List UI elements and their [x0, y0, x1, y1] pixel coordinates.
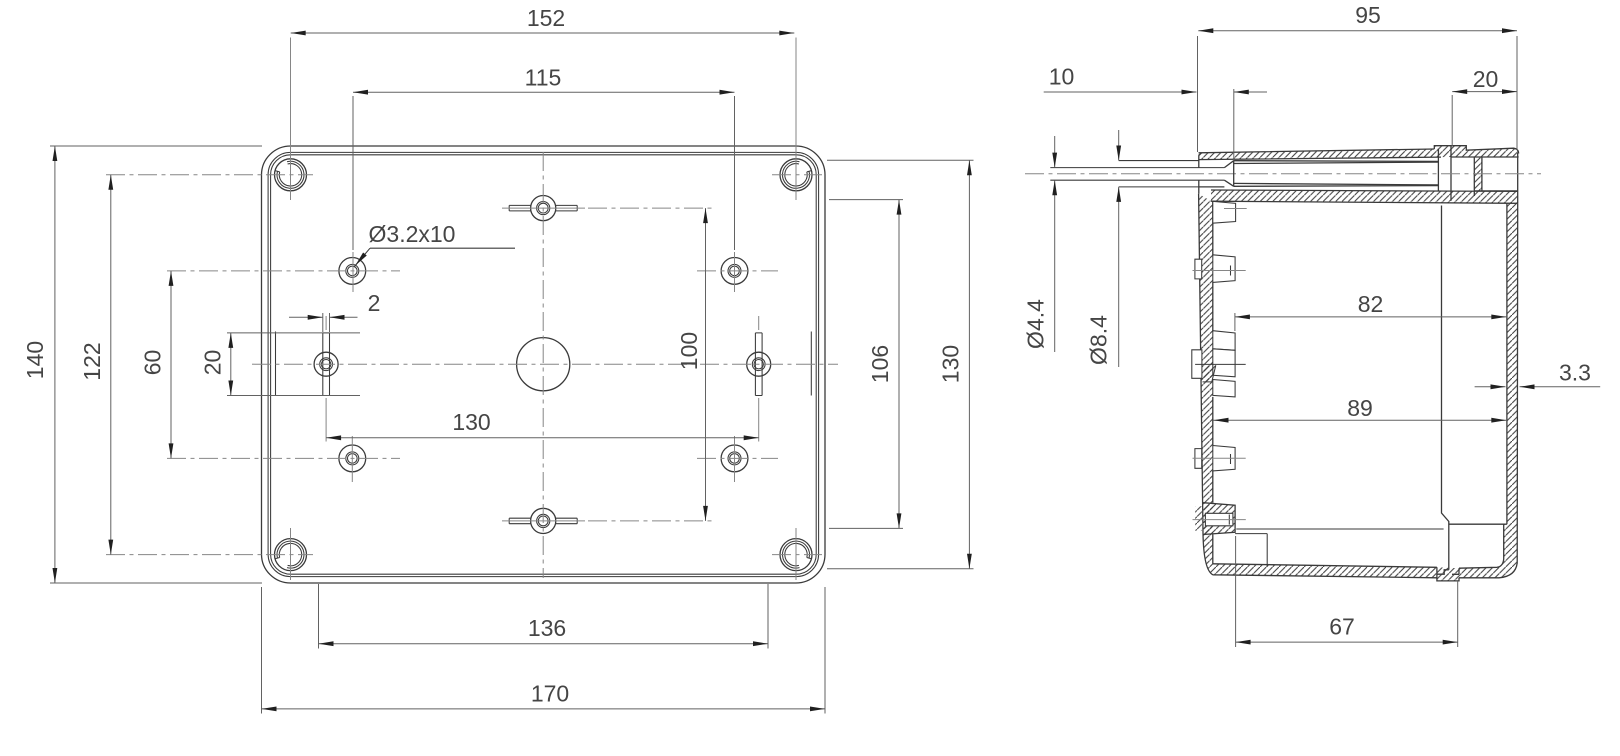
svg-text:122: 122	[79, 342, 105, 380]
svg-text:152: 152	[527, 5, 565, 31]
svg-text:130: 130	[452, 409, 490, 435]
svg-text:140: 140	[22, 341, 48, 379]
svg-text:95: 95	[1355, 2, 1381, 28]
svg-text:82: 82	[1358, 291, 1384, 317]
svg-text:Ø8.4: Ø8.4	[1085, 315, 1111, 365]
svg-text:Ø4.4: Ø4.4	[1023, 299, 1049, 349]
svg-text:Ø3.2x10: Ø3.2x10	[369, 221, 456, 247]
svg-text:3.3: 3.3	[1559, 360, 1591, 386]
svg-text:130: 130	[938, 345, 964, 383]
svg-text:106: 106	[867, 345, 893, 383]
svg-text:170: 170	[531, 681, 569, 707]
svg-text:89: 89	[1347, 395, 1373, 421]
svg-text:100: 100	[676, 332, 702, 370]
svg-text:115: 115	[525, 65, 562, 91]
svg-text:60: 60	[140, 350, 166, 376]
svg-text:2: 2	[368, 290, 381, 316]
svg-text:20: 20	[200, 350, 226, 376]
svg-text:136: 136	[528, 615, 566, 641]
svg-text:10: 10	[1049, 64, 1075, 90]
svg-text:20: 20	[1473, 66, 1499, 92]
svg-text:67: 67	[1329, 614, 1355, 640]
